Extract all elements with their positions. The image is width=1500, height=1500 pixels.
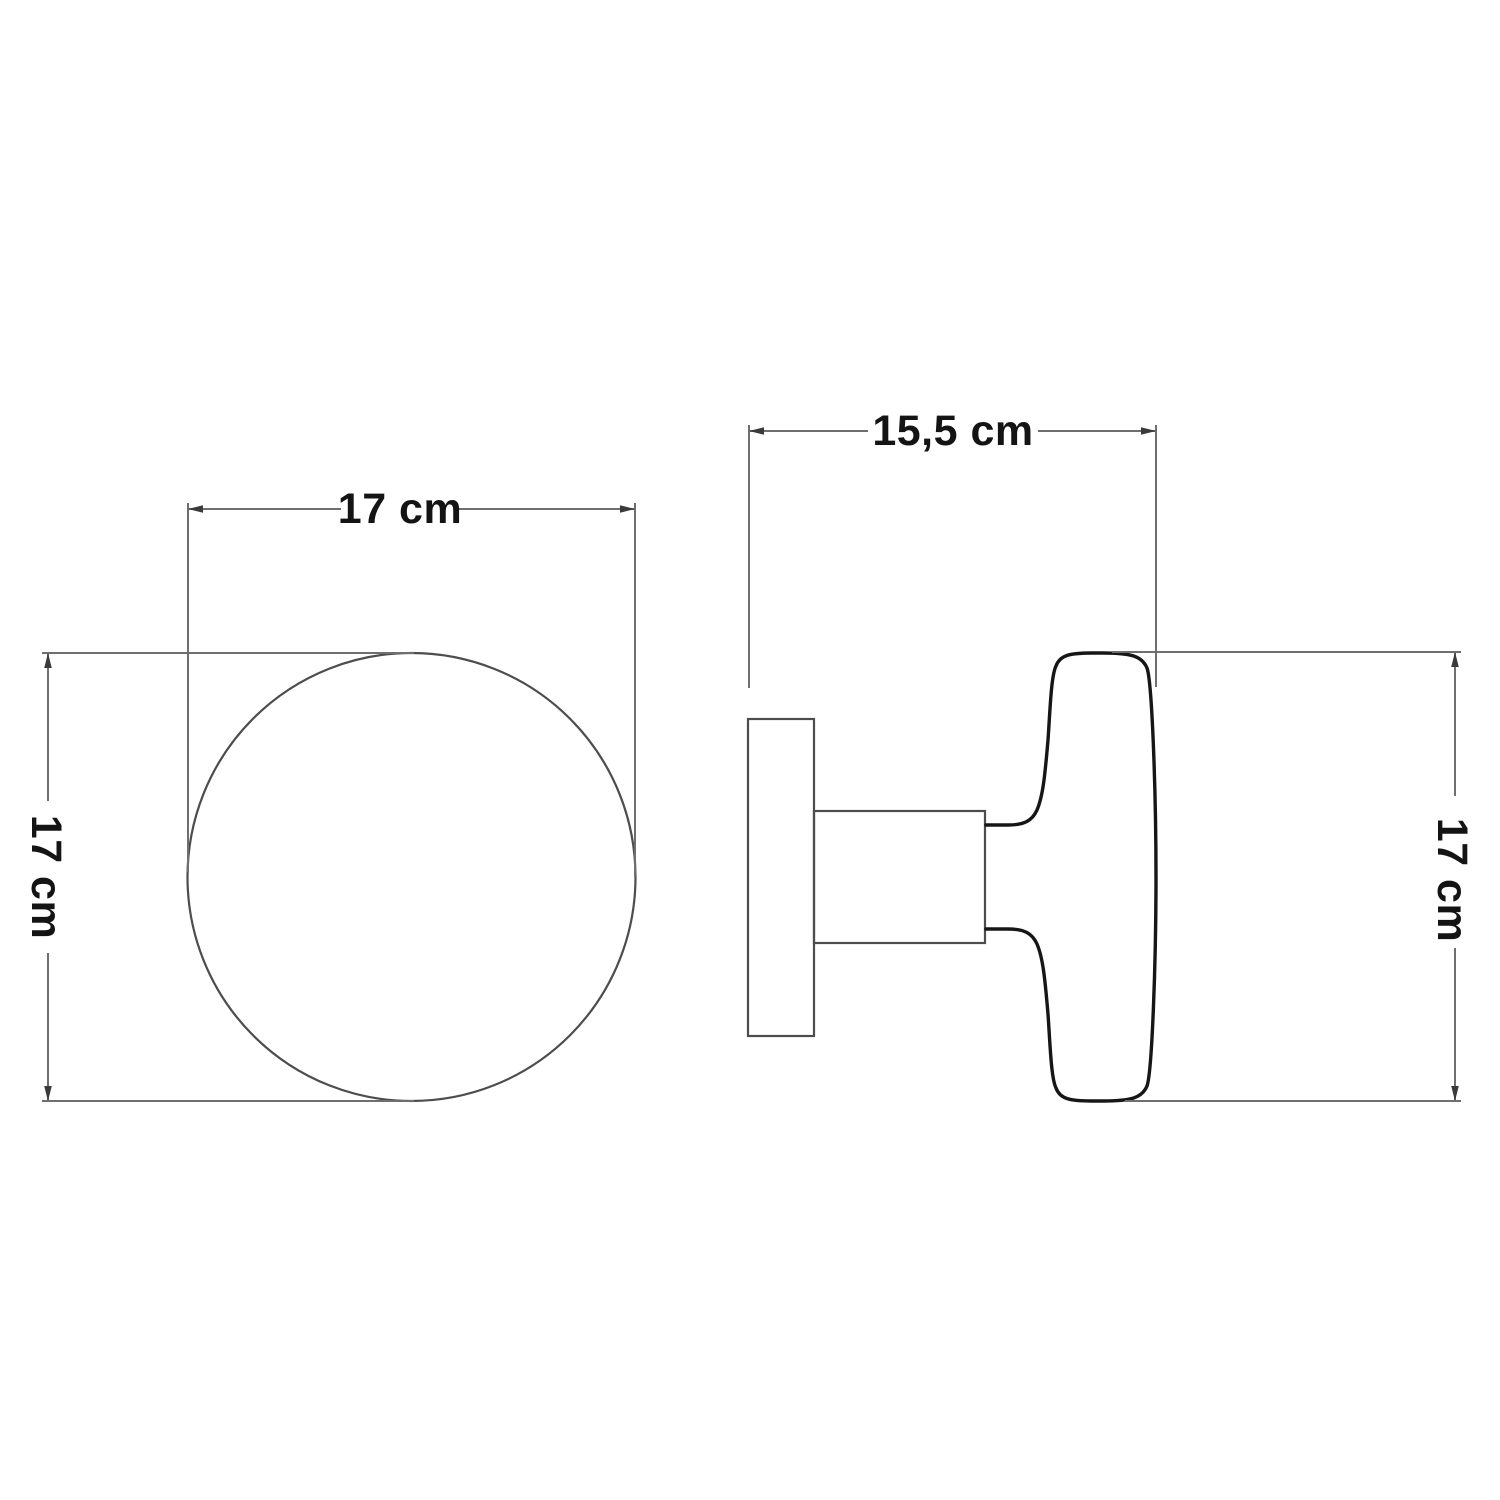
knob-side-outline [986, 653, 1156, 1101]
front-height-label: 17 cm [22, 815, 70, 939]
technical-drawing-canvas: 17 cm 17 cm [0, 0, 1500, 1500]
front-view: 17 cm 17 cm [22, 485, 636, 1101]
side-view: 15,5 cm 17 cm [748, 407, 1476, 1101]
mounting-plate-side-outline [748, 719, 814, 1036]
front-width-dimension: 17 cm [188, 485, 635, 877]
side-height-dimension: 17 cm [1112, 652, 1476, 1101]
arrowhead-left [749, 427, 764, 435]
front-width-label: 17 cm [338, 485, 462, 533]
arrowhead-up [1451, 652, 1459, 667]
dimension-drawing: 17 cm 17 cm [0, 0, 1500, 1500]
arrowhead-down [44, 1086, 52, 1101]
arrowhead-right [1141, 427, 1156, 435]
front-height-dimension: 17 cm [22, 653, 414, 1101]
arrowhead-down [1451, 1086, 1459, 1101]
arrowhead-up [44, 653, 52, 668]
arrowhead-left [188, 505, 203, 513]
arrowhead-right [620, 505, 635, 513]
knob-front-outline [188, 653, 636, 1101]
side-height-label: 17 cm [1428, 818, 1476, 942]
side-width-dimension: 15,5 cm [749, 407, 1156, 688]
side-width-label: 15,5 cm [872, 407, 1033, 455]
stem-side-outline [814, 811, 985, 943]
